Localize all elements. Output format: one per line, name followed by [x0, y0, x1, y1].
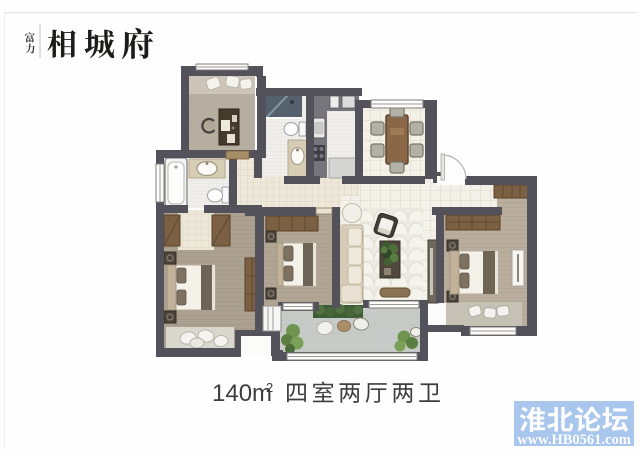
- svg-text:2: 2: [266, 380, 273, 395]
- svg-text:140m: 140m: [212, 380, 272, 407]
- svg-text:www.HB0561.com: www.HB0561.com: [517, 432, 631, 448]
